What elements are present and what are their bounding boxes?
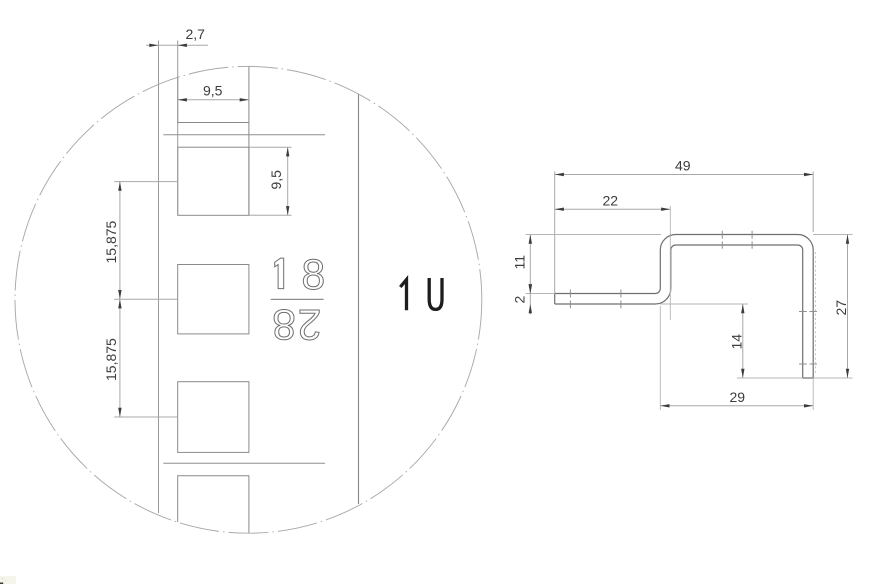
svg-text:14: 14	[729, 334, 745, 350]
svg-text:22: 22	[603, 193, 619, 209]
svg-text:15,875: 15,875	[103, 338, 119, 381]
svg-text:8: 8	[272, 300, 296, 347]
svg-text:9,5: 9,5	[203, 83, 223, 99]
svg-text:2: 2	[512, 296, 528, 304]
svg-text:2,7: 2,7	[186, 26, 206, 42]
svg-text:11: 11	[512, 255, 528, 270]
svg-text:9,5: 9,5	[268, 170, 284, 190]
svg-text:27: 27	[833, 300, 849, 316]
svg-text:2: 2	[298, 300, 322, 347]
svg-text:49: 49	[675, 158, 691, 174]
svg-text:29: 29	[730, 389, 746, 405]
svg-text:8: 8	[302, 252, 326, 299]
svg-text:15,875: 15,875	[103, 220, 119, 263]
